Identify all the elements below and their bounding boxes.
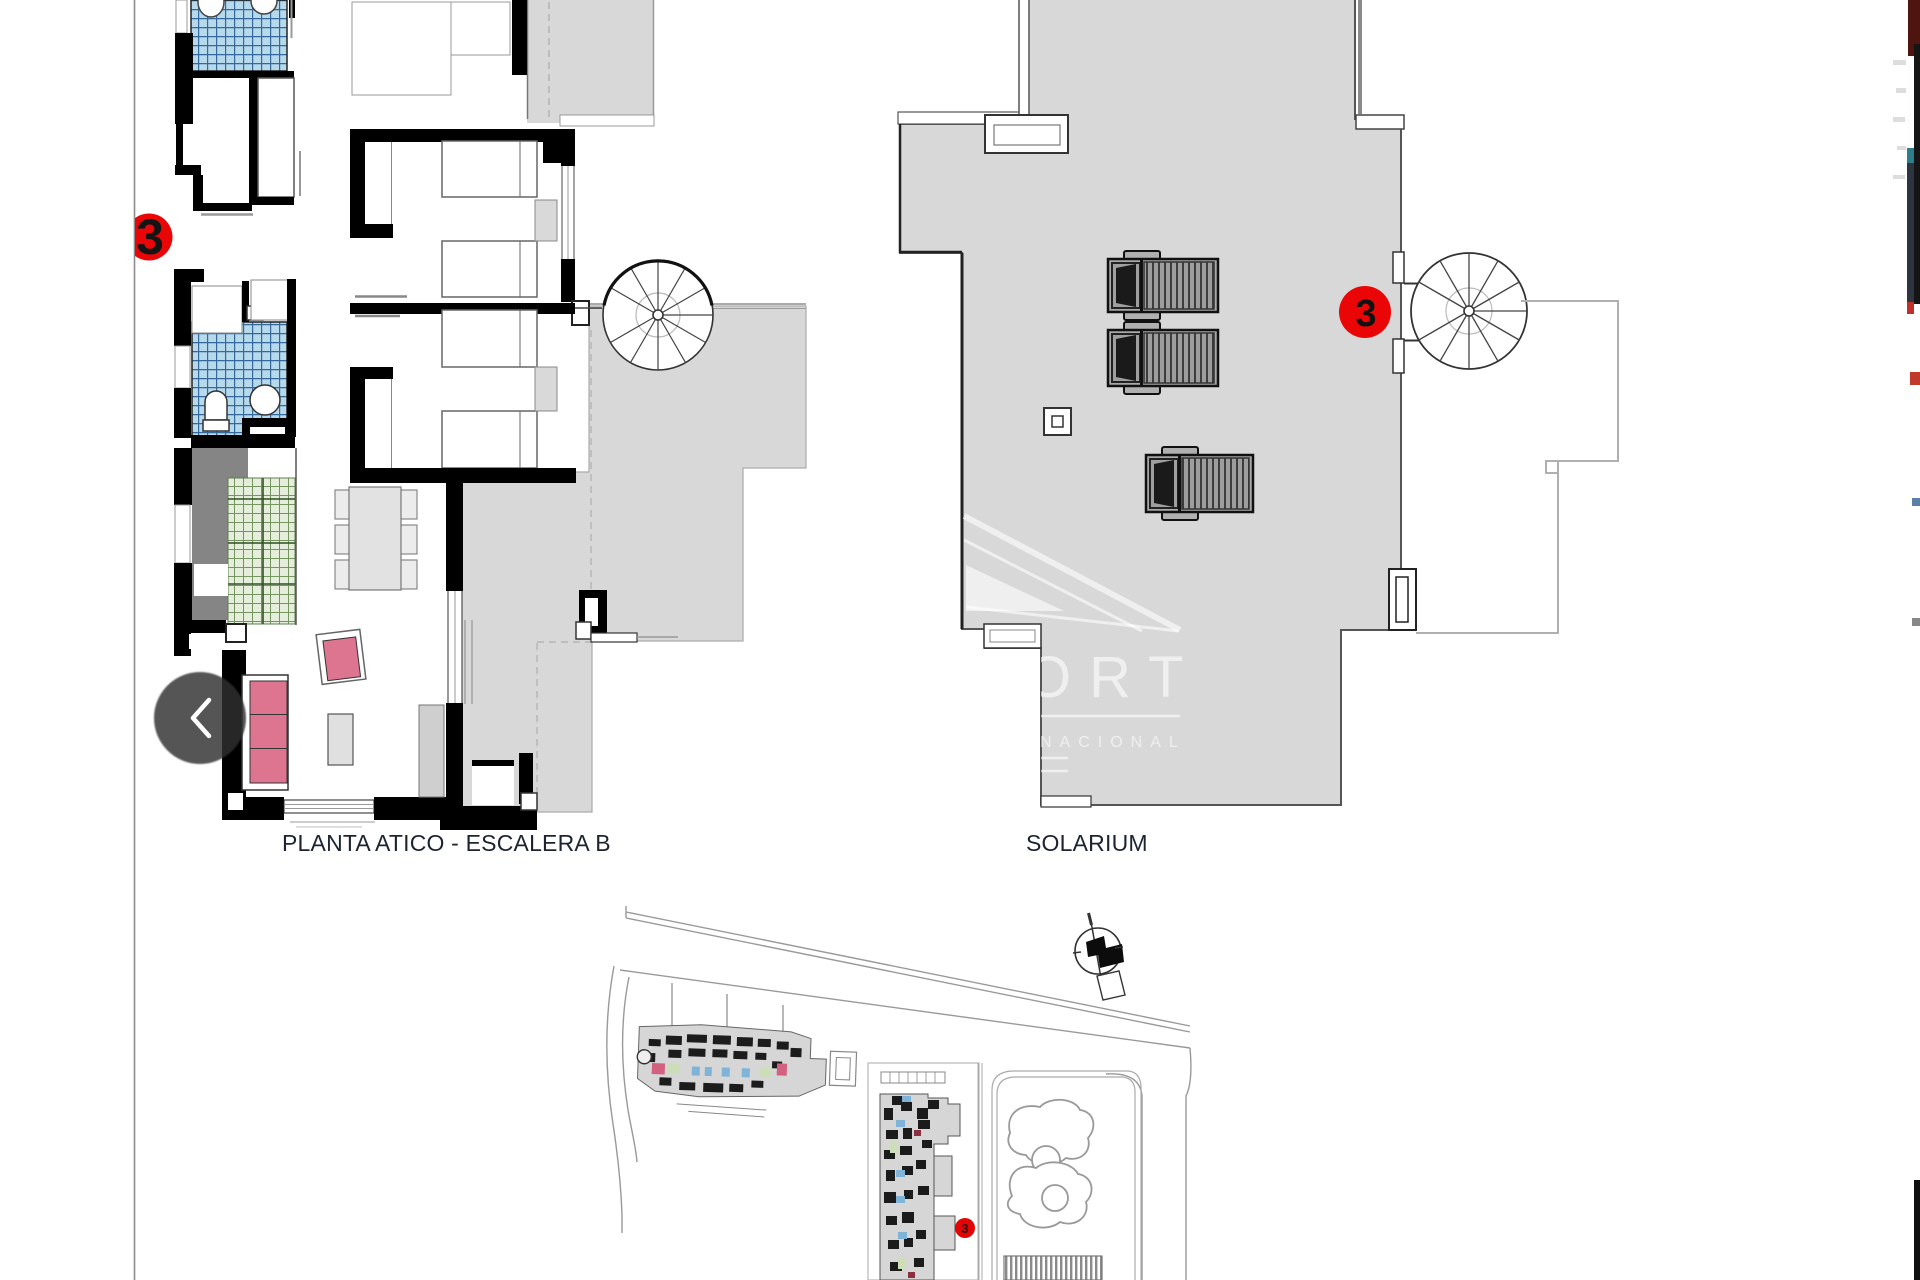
svg-text:3: 3	[961, 1221, 968, 1236]
svg-text:NACIONAL: NACIONAL	[1040, 734, 1186, 751]
svg-text:3: 3	[1355, 293, 1376, 335]
svg-text:SOLARIUM: SOLARIUM	[1026, 830, 1148, 856]
svg-text:3: 3	[136, 209, 164, 265]
svg-text:ORT: ORT	[1026, 645, 1201, 710]
svg-text:PLANTA ATICO - ESCALERA B: PLANTA ATICO - ESCALERA B	[282, 830, 611, 856]
